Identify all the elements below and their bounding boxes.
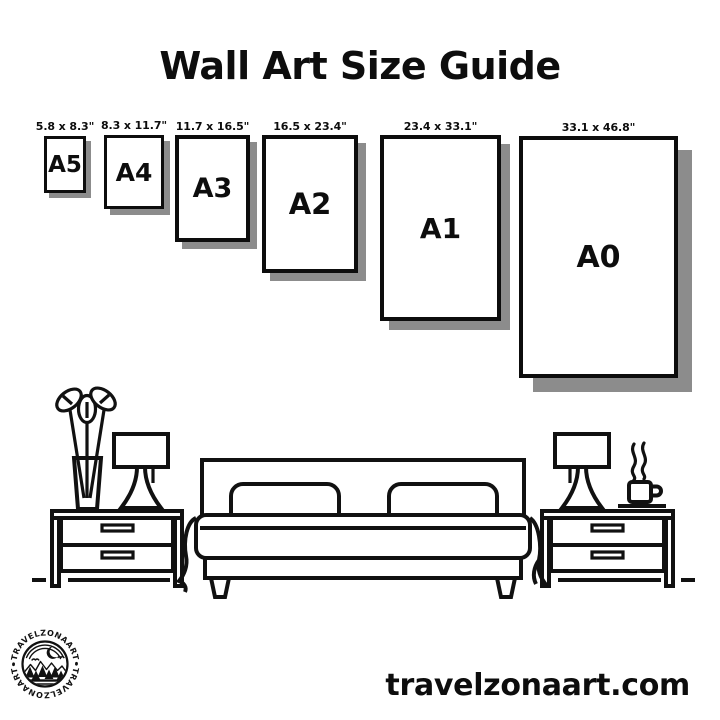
page-title: Wall Art Size Guide xyxy=(0,44,720,88)
frame-a0: 33.1 x 46.8" A0 xyxy=(519,136,678,378)
frame-a1: 23.4 x 33.1" A1 xyxy=(380,135,501,321)
frame-a4-size-label: 8.3 x 11.7" xyxy=(101,119,167,132)
frame-a1-letter: A1 xyxy=(420,212,461,245)
frame-a1-size-label: 23.4 x 33.1" xyxy=(404,120,478,133)
frame-a3-size-label: 11.7 x 16.5" xyxy=(176,120,250,133)
frame-a2: 16.5 x 23.4" A2 xyxy=(262,135,358,273)
frame-a0-size-label: 33.1 x 46.8" xyxy=(562,121,636,134)
size-guide-poster: Wall Art Size Guide 5.8 x 8.3" A5 8.3 x … xyxy=(0,0,720,720)
frame-a3: 11.7 x 16.5" A3 xyxy=(175,135,250,242)
brand-logo-badge: •TRAVELZONAART• •TRAVELZONAART• xyxy=(5,623,85,703)
frame-a5: 5.8 x 8.3" A5 xyxy=(44,136,86,193)
table-lamp-left-icon xyxy=(114,434,168,508)
frame-a2-letter: A2 xyxy=(289,187,332,221)
frame-a5-letter: A5 xyxy=(48,152,82,178)
frame-a0-letter: A0 xyxy=(576,240,620,275)
frame-a4-letter: A4 xyxy=(116,158,153,187)
bedroom-illustration xyxy=(0,380,720,600)
bed-icon xyxy=(179,460,547,597)
coffee-cup-icon xyxy=(618,443,666,506)
plant-vase-icon xyxy=(53,384,120,509)
frame-a4: 8.3 x 11.7" A4 xyxy=(104,135,164,209)
frame-a2-size-label: 16.5 x 23.4" xyxy=(273,120,347,133)
website-url: travelzonaart.com xyxy=(385,668,690,703)
table-lamp-right-icon xyxy=(555,434,609,508)
frame-a5-size-label: 5.8 x 8.3" xyxy=(36,120,94,133)
nightstand-left xyxy=(52,511,182,586)
nightstand-right xyxy=(542,511,673,586)
frame-a3-letter: A3 xyxy=(193,173,233,204)
